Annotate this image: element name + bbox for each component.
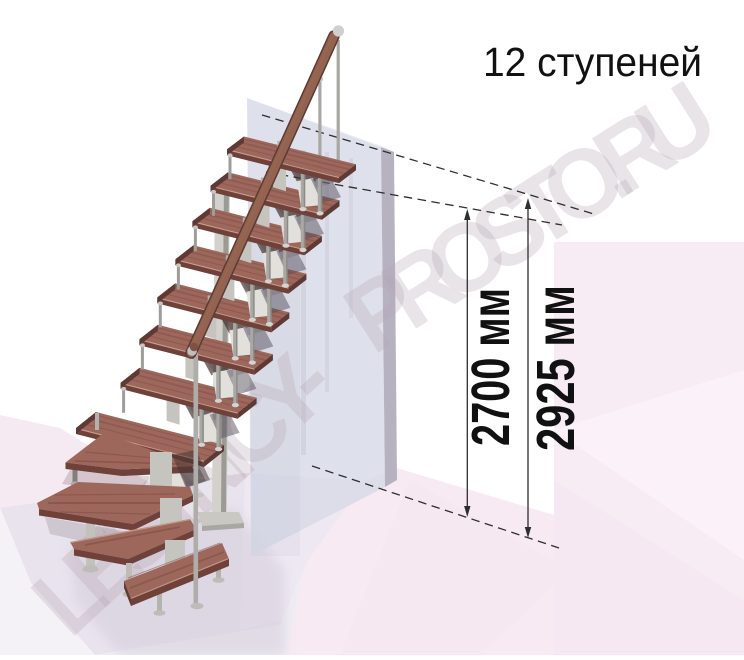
svg-text:2700 мм: 2700 мм (461, 288, 521, 446)
svg-text:2925 мм: 2925 мм (526, 285, 586, 451)
svg-text:12 ступеней: 12 ступеней (483, 39, 702, 85)
